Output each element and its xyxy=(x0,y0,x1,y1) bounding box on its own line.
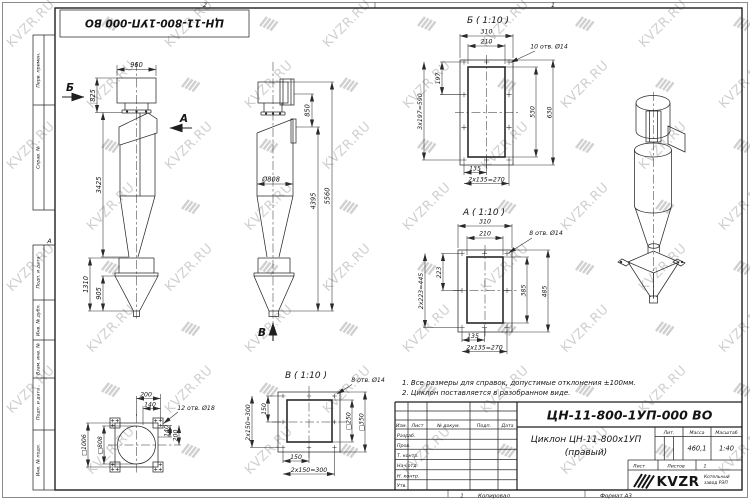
watermark-icon xyxy=(182,200,200,214)
watermark-text: KVZR.RU xyxy=(4,0,58,51)
row-label: Разраб. xyxy=(397,433,415,439)
dim-label: □350 xyxy=(359,413,366,431)
leader-line xyxy=(511,51,536,63)
dim-label: 200 xyxy=(173,430,180,442)
row-label: Т. контр. xyxy=(397,453,419,459)
copied-label: Копировал xyxy=(478,494,510,500)
dim-label: 200 xyxy=(140,392,152,399)
dim-label-905: 905 xyxy=(95,287,103,300)
col-header: № докум. xyxy=(436,423,460,429)
dim-label: 135 xyxy=(467,333,479,340)
watermark-text: KVZR.RU xyxy=(716,302,750,356)
watermark-text: KVZR.RU xyxy=(4,363,58,417)
section-title: Б ( 1:10 ) xyxy=(467,16,509,26)
margin-label: Взам. инв. № xyxy=(36,343,42,375)
logo-subtext: завод РЭП xyxy=(704,480,728,486)
holes-note: 10 отв. Ø14 xyxy=(530,43,568,51)
doc-number: ЦН-11-800-1УП-000 ВО xyxy=(547,408,713,423)
watermark-icon xyxy=(418,17,436,31)
watermark-text: KVZR.RU xyxy=(400,58,454,112)
dim-label-4395: 4395 xyxy=(310,193,318,210)
watermark-text: KVZR.RU xyxy=(162,241,216,295)
watermark-text: KVZR.RU xyxy=(558,58,612,112)
watermark-icon xyxy=(656,444,674,458)
notes: 1. Все размеры для справок, допустимые о… xyxy=(402,379,636,397)
row-label: Утв. xyxy=(397,483,407,489)
watermark-text: KVZR.RU xyxy=(320,119,374,173)
note-line: 1. Все размеры для справок, допустимые о… xyxy=(402,379,636,387)
dim-label-dia808: Ø808 xyxy=(261,176,280,184)
dim-label: 2x135=270 xyxy=(468,177,504,184)
watermark-icon xyxy=(340,200,358,214)
watermark-icon xyxy=(102,139,120,153)
watermark-layer: KVZR.RUKVZR.RUKVZR.RUKVZR.RUKVZR.RUKVZR.… xyxy=(4,0,750,478)
logo-text: KVZR xyxy=(656,474,699,490)
margin-label: Подп. и дата xyxy=(36,388,42,420)
scale-value: 1:40 xyxy=(719,445,734,453)
sheets-label: Листов xyxy=(666,464,685,470)
watermark-icon xyxy=(182,444,200,458)
section-title: А ( 1:10 ) xyxy=(462,208,505,218)
dim-label: 630 xyxy=(547,107,554,119)
sheets-value: 1 xyxy=(704,464,707,470)
margin-label: Справ. № xyxy=(36,146,42,169)
dim-label-3425: 3425 xyxy=(95,177,103,194)
dim-label: 150 xyxy=(290,454,302,461)
dim-label: 135 xyxy=(469,166,481,173)
watermark-icon xyxy=(182,78,200,92)
product-variant: (правый) xyxy=(565,448,607,458)
watermark-icon xyxy=(260,139,278,153)
sheet-label: Лист xyxy=(632,464,645,470)
watermark-text: KVZR.RU xyxy=(84,424,138,478)
row-label: Пров. xyxy=(397,443,411,449)
top-stamp-text: ЦН-11-800-1УП-000 ВО xyxy=(85,17,224,29)
dim-label: 210 xyxy=(479,231,491,238)
dim-label: 3x197=590 xyxy=(417,93,424,129)
dim-label: 2x223=445 xyxy=(418,273,425,309)
section-title: В ( 1:10 ) xyxy=(285,371,327,381)
mass-value: 460,1 xyxy=(688,445,707,453)
watermark-text: KVZR.RU xyxy=(400,180,454,234)
watermark-icon xyxy=(260,383,278,397)
dim-label: 310 xyxy=(481,29,493,36)
dim-label: 530 xyxy=(530,106,537,118)
watermark-icon xyxy=(418,139,436,153)
watermark-text: KVZR.RU xyxy=(162,119,216,173)
col-header: Дата xyxy=(500,423,513,429)
dim-label: 485 xyxy=(542,286,549,298)
watermark-text: KVZR.RU xyxy=(320,363,374,417)
drawing-sheet: KVZR.RUKVZR.RUKVZR.RUKVZR.RUKVZR.RUKVZR.… xyxy=(0,0,750,500)
spring-coil-icon xyxy=(634,474,654,489)
watermark-text: KVZR.RU xyxy=(242,180,296,234)
col-header: Подп. xyxy=(477,423,491,429)
dim-label: 385 xyxy=(521,285,528,297)
watermark-text: KVZR.RU xyxy=(558,180,612,234)
dim-label: 150 xyxy=(261,403,268,415)
zone-label: 2 xyxy=(203,2,207,9)
watermark-text: KVZR.RU xyxy=(84,302,138,356)
watermark-text: KVZR.RU xyxy=(636,119,690,173)
format-label: Формат А3 xyxy=(600,494,632,500)
watermark-icon xyxy=(340,78,358,92)
logo-subtext: Котельный xyxy=(704,474,730,480)
dim-label: 197 xyxy=(435,73,442,85)
margin-label: Подп. и дата xyxy=(36,256,42,288)
holes-note: 12 отв. Ø18 xyxy=(177,404,215,412)
watermark-text: KVZR.RU xyxy=(716,58,750,112)
dim-label-5560: 5560 xyxy=(324,188,332,205)
col-header: Изм. xyxy=(396,423,407,429)
dim-label-1310: 1310 xyxy=(82,276,90,293)
col-header: Лист xyxy=(411,423,424,429)
margin-label: Перв. примен. xyxy=(36,52,42,87)
watermark-icon xyxy=(576,261,594,275)
margin-label: Инв. № дубл. xyxy=(36,304,42,336)
watermark-text: KVZR.RU xyxy=(84,180,138,234)
watermark-icon xyxy=(102,261,120,275)
zone-row-label: А xyxy=(46,238,51,245)
view-arrow-label-b: Б xyxy=(66,82,74,94)
dim-label: 2x135=270 xyxy=(466,345,502,352)
dim-label-825: 825 xyxy=(89,89,97,102)
dim-label: 2x150=300 xyxy=(291,467,327,474)
dim-label-960: 960 xyxy=(130,61,143,69)
dim-label: 223 xyxy=(436,267,443,279)
row-label: Нач.отд. xyxy=(397,463,418,469)
zone-label: 1 xyxy=(460,494,464,500)
view-arrow-label-v: В xyxy=(258,327,266,339)
row-label: Н. контр. xyxy=(397,473,419,479)
product-title: Циклон ЦН-11-800х1УП xyxy=(531,435,642,445)
watermark-icon xyxy=(656,78,674,92)
dim-label: 140 xyxy=(144,402,156,409)
margin-label: Инв. № подл. xyxy=(36,444,42,476)
drawing-canvas: KVZR.RUKVZR.RUKVZR.RUKVZR.RUKVZR.RUKVZR.… xyxy=(0,0,750,500)
dim-label: □808 xyxy=(97,436,104,454)
dim-label-850: 850 xyxy=(304,104,312,117)
iso-cap-top xyxy=(636,96,670,111)
watermark-icon xyxy=(498,444,516,458)
watermark-text: KVZR.RU xyxy=(4,241,58,295)
watermark-text: KVZR.RU xyxy=(4,119,58,173)
watermark-icon xyxy=(260,17,278,31)
watermark-text: KVZR.RU xyxy=(320,241,374,295)
watermark-icon xyxy=(102,383,120,397)
holes-note: 8 отв. Ø14 xyxy=(529,229,563,237)
watermark-icon xyxy=(576,139,594,153)
note-line: 2. Циклон поставляется в разобранном вид… xyxy=(402,389,570,397)
watermark-icon xyxy=(576,17,594,31)
watermark-icon xyxy=(182,322,200,336)
watermark-icon xyxy=(340,322,358,336)
dim-label: 310 xyxy=(479,219,491,226)
watermark-icon xyxy=(656,322,674,336)
watermark-icon xyxy=(418,261,436,275)
dim-label: □1006 xyxy=(81,434,88,456)
lit-header: Лит. xyxy=(663,430,675,436)
dim-label: 210 xyxy=(481,39,493,46)
watermark-text: KVZR.RU xyxy=(400,302,454,356)
dim-label: 2x150=300 xyxy=(245,404,252,440)
mass-header: Масса xyxy=(690,430,705,436)
zone-label: 1 xyxy=(551,2,555,9)
watermark-icon xyxy=(260,261,278,275)
watermark-text: KVZR.RU xyxy=(242,302,296,356)
holes-note: 8 отв. Ø14 xyxy=(351,376,385,384)
watermark-text: KVZR.RU xyxy=(558,302,612,356)
watermark-icon xyxy=(340,444,358,458)
watermark-text: KVZR.RU xyxy=(716,180,750,234)
view-arrow-label-a: А xyxy=(179,113,188,125)
dim-label: 140 xyxy=(164,425,171,437)
scale-header: Масштаб xyxy=(715,430,737,436)
dim-label: □250 xyxy=(346,412,353,430)
